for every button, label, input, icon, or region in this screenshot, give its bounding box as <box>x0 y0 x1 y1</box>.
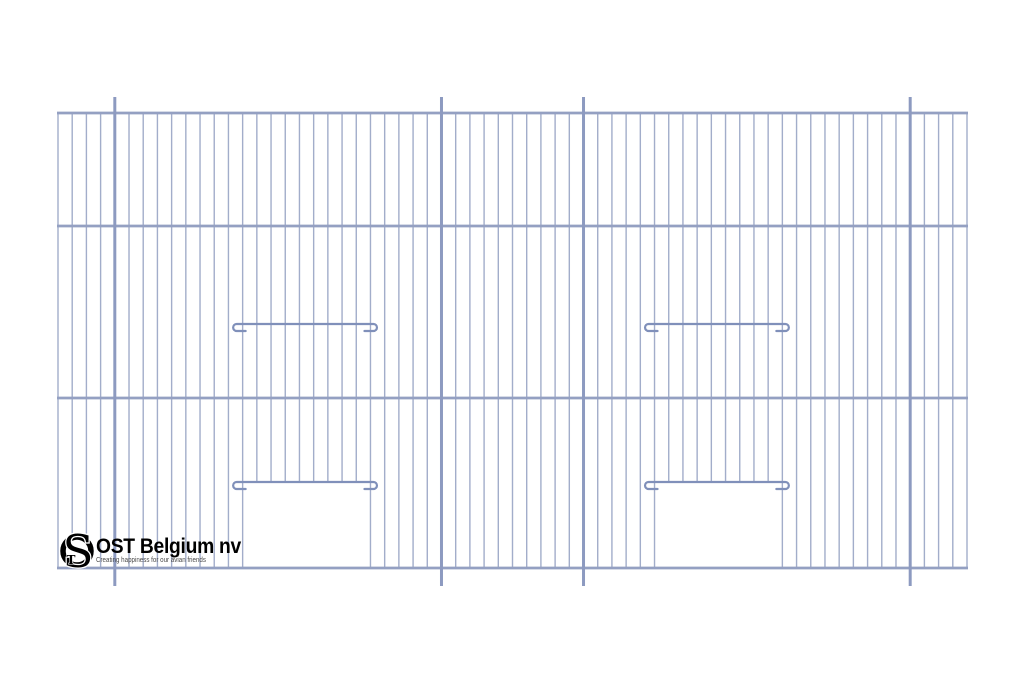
perch-rail <box>645 324 789 331</box>
door-rail <box>645 482 789 489</box>
wire-grid <box>58 113 967 568</box>
company-tagline: Creating happiness for our avian friends <box>96 557 206 564</box>
cage-front-panel: S T OST Belgium nv Creating happiness fo… <box>0 0 1024 683</box>
door-rail <box>233 482 377 489</box>
perch-rail <box>233 324 377 331</box>
company-name: OST Belgium nv <box>96 535 242 558</box>
rails-and-doors <box>233 324 789 568</box>
door-opening <box>243 482 371 568</box>
door-opening <box>655 482 783 568</box>
logo-monogram-t: T <box>67 553 76 567</box>
product-image: S T OST Belgium nv Creating happiness fo… <box>0 0 1024 683</box>
logo-monogram-s: S <box>63 525 94 578</box>
